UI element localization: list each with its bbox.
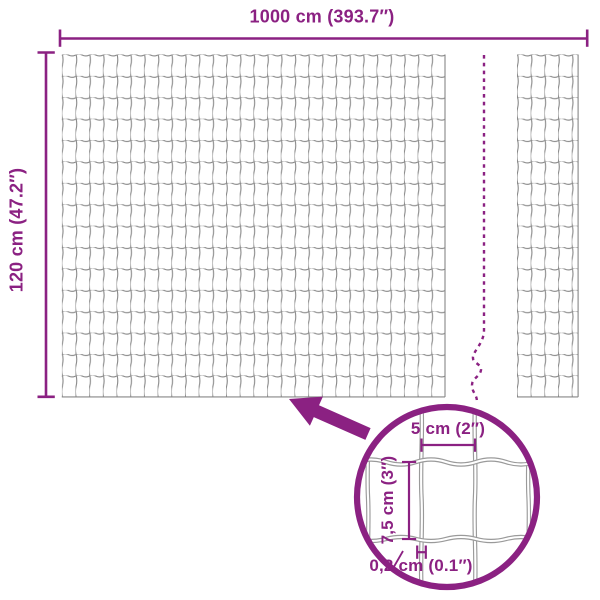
break-line bbox=[472, 55, 484, 402]
width-dimension bbox=[60, 30, 587, 47]
zoom-arrow-icon bbox=[289, 397, 371, 440]
total-height-label: 120 cm (47.2″) bbox=[7, 168, 28, 293]
cell-height-label: 7,5 cm (3″) bbox=[378, 456, 398, 545]
fence-mesh-right bbox=[517, 55, 578, 398]
cell-width-label: 5 cm (2″) bbox=[411, 419, 485, 439]
product-dimension-diagram: 1000 cm (393.7″) 120 cm (47.2″) 5 cm (2″… bbox=[0, 0, 600, 600]
wire-thickness-label: 0,2 cm (0.1″) bbox=[369, 556, 472, 576]
fence-mesh-left bbox=[62, 55, 445, 398]
total-width-label: 1000 cm (393.7″) bbox=[250, 7, 395, 28]
diagram-canvas bbox=[0, 0, 600, 600]
height-dimension bbox=[38, 53, 55, 397]
